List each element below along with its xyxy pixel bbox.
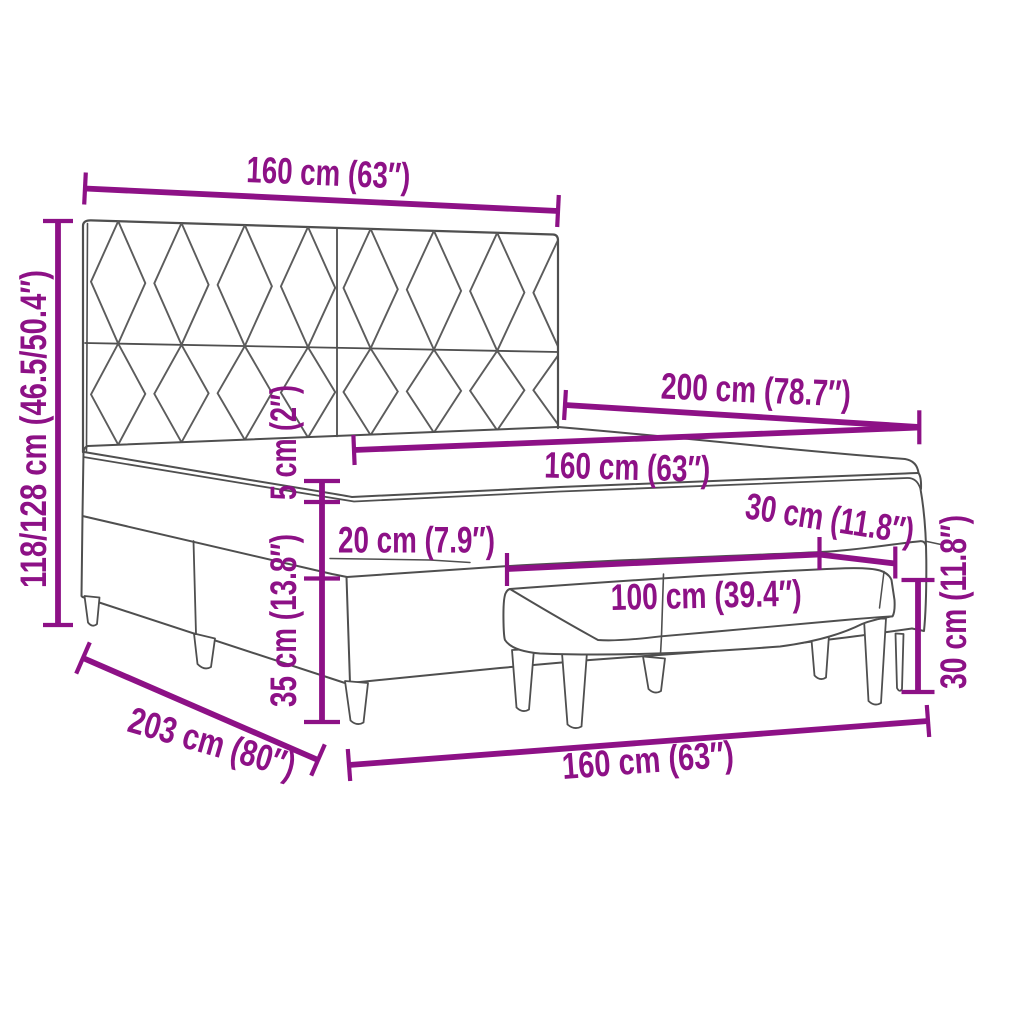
svg-text:100 cm (39.4″): 100 cm (39.4″): [610, 573, 802, 618]
svg-text:30 cm (11.8″): 30 cm (11.8″): [933, 515, 974, 689]
svg-text:35 cm (13.8″): 35 cm (13.8″): [263, 534, 304, 707]
svg-text:118/128 cm (46.5/50.4″): 118/128 cm (46.5/50.4″): [13, 270, 54, 588]
svg-text:5 cm (2″): 5 cm (2″): [263, 385, 304, 500]
svg-text:160 cm (63″): 160 cm (63″): [246, 149, 412, 197]
svg-text:200 cm (78.7″): 200 cm (78.7″): [660, 366, 852, 415]
svg-text:20 cm (7.9″): 20 cm (7.9″): [338, 520, 495, 561]
svg-text:160 cm (63″): 160 cm (63″): [544, 445, 711, 490]
